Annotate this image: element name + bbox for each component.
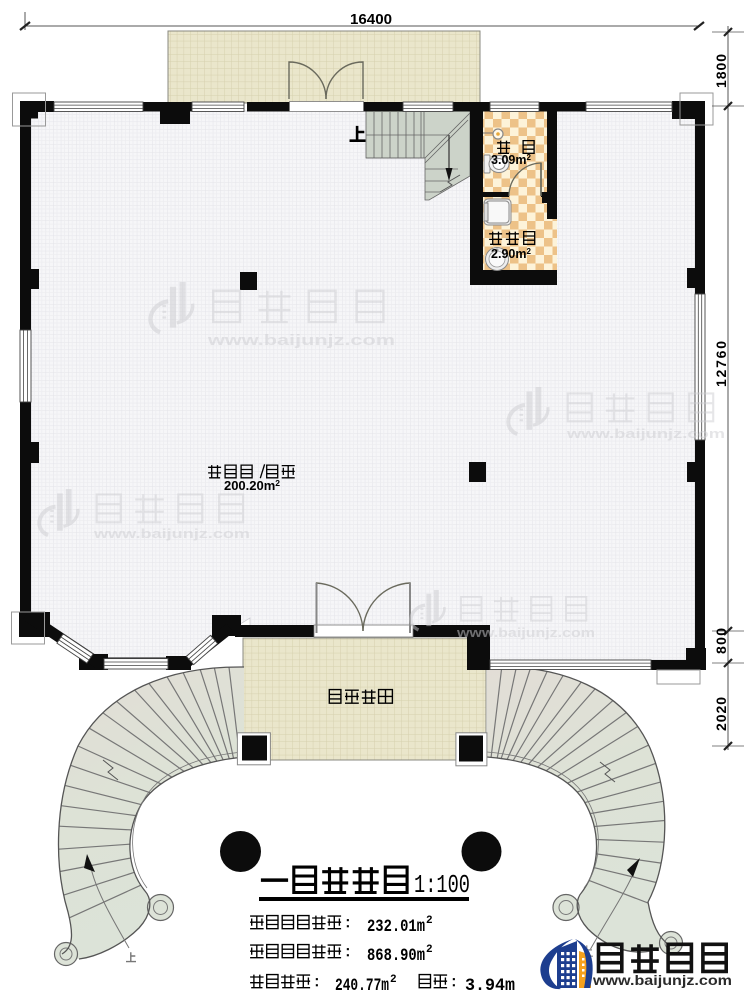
svg-text:2: 2: [426, 944, 433, 956]
svg-text:www.baijunjz.com: www.baijunjz.com: [456, 625, 595, 640]
svg-text:2: 2: [390, 974, 397, 986]
svg-text:232.01m: 232.01m: [367, 917, 425, 937]
svg-text:3.09m2: 3.09m2: [491, 153, 531, 167]
svg-text:12760: 12760: [713, 341, 729, 387]
svg-text:200.20m2: 200.20m2: [224, 478, 280, 493]
svg-text:www.baijunjz.com: www.baijunjz.com: [592, 972, 732, 988]
svg-text:1800: 1800: [713, 54, 729, 88]
svg-text:1:100: 1:100: [414, 870, 470, 900]
svg-text:2: 2: [426, 915, 433, 927]
svg-text:www.baijunjz.com: www.baijunjz.com: [93, 526, 250, 541]
svg-text:800: 800: [713, 628, 729, 654]
svg-text:240.77m: 240.77m: [335, 976, 389, 996]
svg-text:www.baijunjz.com: www.baijunjz.com: [207, 332, 395, 349]
svg-text:2020: 2020: [713, 697, 729, 731]
svg-text:3.94m: 3.94m: [465, 976, 515, 996]
svg-text:2.90m2: 2.90m2: [491, 247, 531, 261]
svg-text:868.90m: 868.90m: [367, 946, 425, 966]
svg-text:www.baijunjz.com: www.baijunjz.com: [566, 426, 725, 441]
svg-text:16400: 16400: [350, 11, 392, 28]
